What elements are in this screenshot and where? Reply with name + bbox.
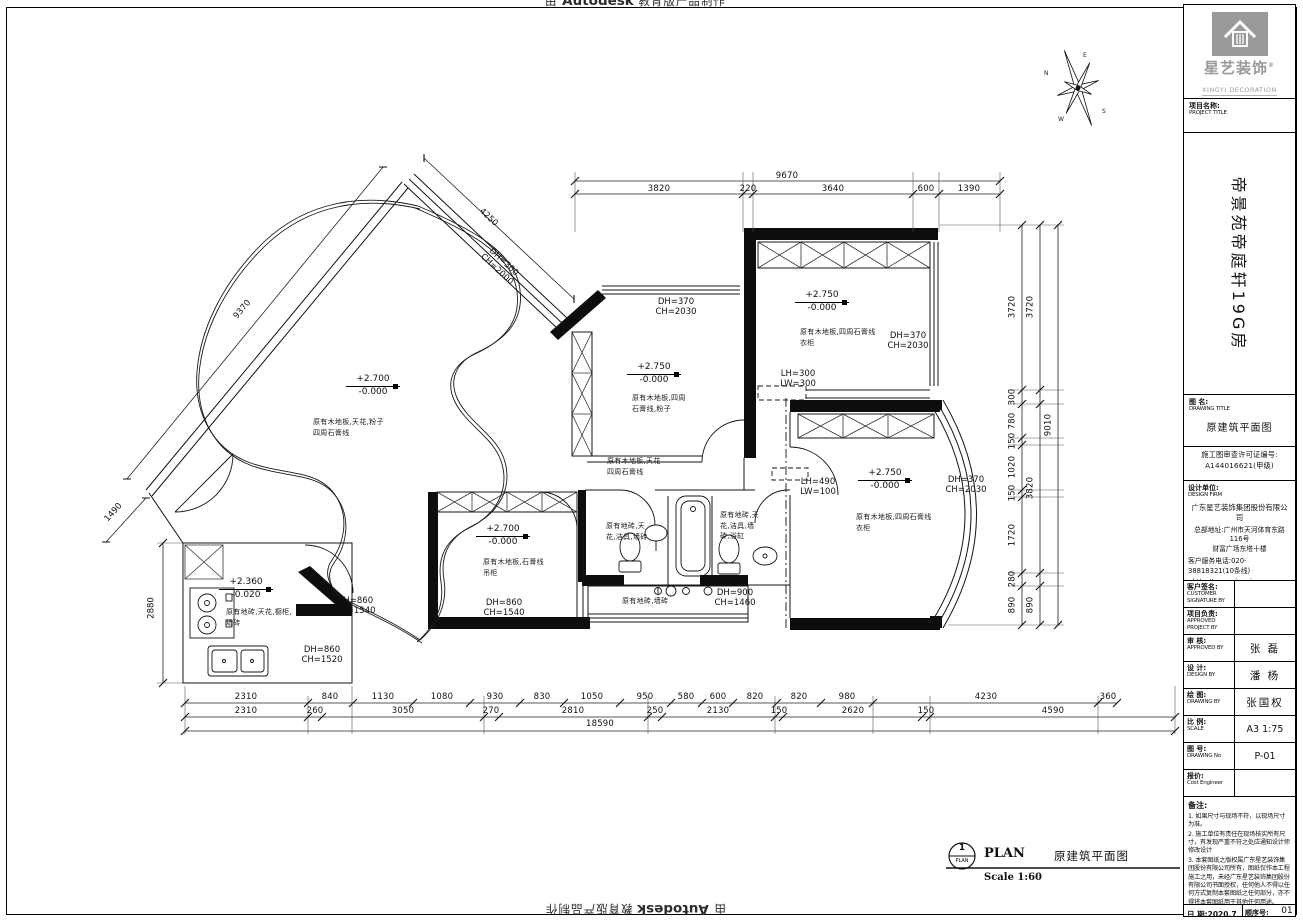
level-up: +2.700 [356,374,389,384]
tag-line: CH=2030 [655,307,696,317]
row-label-en: SCALE [1187,726,1231,733]
level-down: -0.000 [476,537,530,548]
opening-tag: DH=370 CH=2030 [655,297,696,317]
level-marker-bed-mid: +2.750 -0.000 [627,362,681,387]
firm-address2: 财富广场东塔十楼 [1188,545,1291,555]
project-label-en: PROJECT TITLE [1189,110,1290,117]
level-down: -0.020 [219,590,273,601]
tag-line: DH=860 [483,598,524,608]
finish-note-bed-tr: 原有木地板,四周石膏线 衣柜 [800,327,876,348]
license-line1: 施工图审查许可证编号: [1184,450,1295,461]
dim: 150 [1008,433,1017,450]
project-label: 项目名称: [1189,102,1290,110]
compass-n: N [1044,70,1049,77]
dim: 150 [771,707,788,716]
level-down: -0.000 [627,375,681,386]
plan-scale: Scale 1:60 [984,872,1042,883]
date-label: 日 期:2020.7 [1187,909,1239,916]
tag-line: CH=1520 [301,655,342,665]
opening-tag: DH=860 CH=1540 [334,596,375,616]
tag-line: DH=860 [301,645,342,655]
level-up: +2.700 [486,524,519,534]
plan-number: 1 [959,843,965,853]
floor-plan-canvas [0,0,1183,921]
dim: 820 [791,693,808,702]
dim: 780 [1008,413,1017,430]
row-value: 潘 杨 [1234,662,1295,688]
dim: 600 [710,693,727,702]
dim: 2130 [707,707,729,716]
drawing-title: 原建筑平面图 [1189,419,1290,434]
row-label: 项目负责: [1187,610,1231,618]
level-up: +2.750 [805,290,838,300]
sink-icon [208,646,268,676]
seq-value: 01 [1279,905,1295,916]
dim: 2620 [842,707,864,716]
row-label: 审 核: [1187,637,1231,645]
dim: 3640 [822,185,844,194]
finish-note-master: 原有木地板,四周石膏线 衣柜 [856,512,932,533]
compass-e: E [1083,52,1087,59]
project-title-cell: 项目名称: PROJECT TITLE [1184,99,1295,133]
dim: 2310 [235,693,257,702]
dim-bottom-total: 18590 [586,720,614,729]
compass-w: W [1058,116,1064,123]
dim: 270 [483,707,500,716]
dim: 890 [1008,597,1017,614]
row-label: 设 计: [1187,664,1231,672]
compass-s: S [1102,108,1106,115]
dim-left-vert: 2880 [147,597,156,619]
row-label-en: APPROVED PROJECT BY [1187,618,1231,631]
row-value: 张 磊 [1234,635,1295,661]
opening-tag: DH=860 CH=1520 [301,645,342,665]
dim: 220 [740,185,757,194]
row-label-en: Cost Engineer [1187,780,1231,787]
level-marker-living: +2.700 -0.000 [346,374,400,399]
tag-line: CH=1540 [334,606,375,616]
row-label: 比 例: [1187,718,1231,726]
row-value: A3 1:75 [1234,716,1295,742]
row-scale: 比 例: SCALE A3 1:75 [1184,716,1295,743]
row-value [1234,770,1295,796]
finish-note-bath2: 原有地砖,天 花,洁具,墙 砖,浴缸 [720,510,759,542]
design-firm-cell: 设计单位: DESIGN FIRM 广东星艺装饰集团股份有限公司 总部地址:广州… [1184,481,1295,581]
notes-cell: 备注: 1. 如果尺寸与现场不符，以现场尺寸为准。 2. 施工单位有责任在现场核… [1184,797,1295,905]
watermark-brand: Autodesk [637,901,709,917]
dim: 1130 [372,693,394,702]
dim: 150 [918,707,935,716]
drawing-sheet: 由 Autodesk 教育版产品制作 由 Autodesk 教育版产品制作 E … [0,0,1303,921]
note-3: 3. 本套图纸之版权属广东星艺装饰集团股份有限公司所有，图纸仅作本工程施工之用，… [1188,857,1291,905]
row-value: 张国权 [1234,689,1295,715]
dim: 280 [1008,571,1017,588]
tag-line: LW=300 [780,379,816,389]
plan-title-cn: 原建筑平面图 [1054,848,1129,864]
dim: 1720 [1008,524,1017,546]
title-block: 星艺装饰® XINGYI DECORATION 项目名称: PROJECT TI… [1183,4,1296,917]
opening-tag: DH=370 CH=2030 [887,331,928,351]
watermark-brand: Autodesk [562,0,634,9]
dim: 3050 [392,707,414,716]
row-label: 客户签名: [1187,583,1231,591]
dim: 600 [918,185,935,194]
opening-tag: DH=900 CH=1460 [714,588,755,608]
row-label: 绘 图: [1187,691,1231,699]
date-cell: 日 期:2020.7 DATE 顺序号: NO. 01 [1184,905,1295,916]
note-1: 1. 如果尺寸与现场不符，以现场尺寸为准。 [1188,813,1291,830]
row-approved-project: 项目负责: APPROVED PROJECT BY [1184,608,1295,635]
dim: 1390 [958,185,980,194]
firm-address1: 总部地址:广州市天河体育东路116号 [1188,526,1291,545]
plan-title-en: PLAN [984,846,1025,861]
dim: 930 [487,693,504,702]
firm-label-en: DESIGN FIRM [1188,492,1291,499]
dim-top-total: 9670 [776,172,798,181]
dim: 1080 [431,693,453,702]
tag-line: CH=2030 [945,485,986,495]
seq-label: 顺序号: [1245,909,1277,916]
row-label-en: DRAWING BY [1187,699,1231,706]
notes-label: 备注: [1188,800,1291,811]
plan-ref: PLAN [955,858,968,864]
finish-note-bed-small: 原有木地板,石膏线 吊柜 [483,557,544,578]
dim: 2810 [562,707,584,716]
tag-line: DH=370 [655,297,696,307]
project-name-cell: 帝景苑帝庭轩19G房 [1184,133,1295,395]
row-label-en: CUSTOMER SIGNATURE BY [1187,591,1231,604]
logo-house-icon [1212,12,1268,56]
drawing-title-cell: 图 名: DRAWING TITLE 原建筑平面图 [1184,395,1295,447]
row-customer-signature: 客户签名: CUSTOMER SIGNATURE BY [1184,581,1295,608]
tag-line: CH=2030 [887,341,928,351]
finish-note-corridor: 原有木地板,天花 四周石膏线 [607,456,661,477]
tag-line: LH=300 [780,369,816,379]
dim: 1050 [581,693,603,702]
project-name: 帝景苑帝庭轩19G房 [1228,176,1252,351]
dim: 890 [1026,597,1035,614]
level-down: -0.000 [795,303,849,314]
dim: 580 [678,693,695,702]
note-2: 2. 施工单位有责任在现场核实所有尺寸，有发现严重不符之处应通知设计师修改设计 [1188,831,1291,856]
opening-tag: DH=860 CH=1540 [483,598,524,618]
row-value: P-01 [1234,743,1295,769]
row-label: 报价: [1187,772,1231,780]
dashed-openings [758,386,808,630]
level-up: +2.750 [868,468,901,478]
level-marker-kitchen: +2.360 -0.020 [219,577,273,602]
row-label-en: APPROVED BY [1187,645,1231,652]
opening-tag: LH=300 LW=300 [780,369,816,389]
tag-line: DH=860 [334,596,375,606]
dim: 4590 [1042,707,1064,716]
watermark-text: 教育版产品制作 [545,902,633,916]
tag-line: DH=370 [887,331,928,341]
registered-mark: ® [1268,62,1275,69]
dim: 260 [307,707,324,716]
row-drawing-by: 绘 图: DRAWING BY 张国权 [1184,689,1295,716]
tag-line: DH=370 [945,475,986,485]
finish-note-balcony: 原有地砖,墙砖 [622,596,668,607]
row-approved-by: 审 核: APPROVED BY 张 磊 [1184,635,1295,662]
finish-note-kitchen: 原有地砖,天花,橱柜, 墙砖 [226,607,292,628]
dim-right-total: 9010 [1044,414,1053,436]
firm-phone: 客户服务电话:020-38818321(10条线) [1188,557,1291,576]
tag-line: CH=1540 [483,608,524,618]
dim: 830 [534,693,551,702]
row-value [1234,608,1295,634]
row-design-by: 设 计: DESIGN BY 潘 杨 [1184,662,1295,689]
dim: 300 [1008,389,1017,406]
dim: 3720 [1026,296,1035,318]
dim: 2310 [235,707,257,716]
company-logo: 星艺装饰® XINGYI DECORATION [1184,5,1295,99]
tag-line: LW=100 [800,487,836,497]
dim: 820 [747,693,764,702]
watermark-text: 由 [713,902,726,916]
basin-icon [753,547,777,565]
brand-en: XINGYI DECORATION [1202,87,1277,96]
level-up: +2.750 [637,362,670,372]
license-line2: A144016621(甲级) [1184,461,1295,472]
opening-tag: DH=370 CH=2030 [945,475,986,495]
dim: 3820 [1026,477,1035,499]
dim: 3820 [648,185,670,194]
license-cell: 施工图审查许可证编号: A144016621(甲级) [1184,447,1295,481]
opening-tag: LH=490 LW=100 [800,477,836,497]
dim: 980 [839,693,856,702]
finish-note-living: 原有木地板,天花,粉子 四周石膏线 [313,417,384,438]
row-label-en: DRAWING No [1187,753,1231,760]
brand-cn: 星艺装饰 [1204,59,1268,77]
level-marker-master: +2.750 -0.000 [858,468,912,493]
autodesk-watermark-top: 由 Autodesk 教育版产品制作 [545,0,726,9]
basin-icon [645,525,667,541]
level-up: +2.360 [229,577,262,587]
compass-icon [1036,40,1121,136]
row-cost-engineer: 报价: Cost Engineer [1184,770,1295,797]
dim: 250 [647,707,664,716]
dim: 150 [1008,485,1017,502]
finish-note-bath1: 原有地砖,天 花,洁具,墙砖 [606,521,648,542]
finish-note-bed-mid: 原有木地板,四周 石膏线,粉子 [632,393,686,414]
tag-line: DH=900 [714,588,755,598]
level-marker-bed-tr: +2.750 -0.000 [795,290,849,315]
watermark-text: 教育版产品制作 [638,0,726,8]
tag-line: LH=490 [800,477,836,487]
dim: 950 [637,693,654,702]
dim: 840 [322,693,339,702]
drawing-label: 图 名: [1189,398,1290,406]
dim: 4230 [975,693,997,702]
firm-name: 广东星艺装饰集团股份有限公司 [1188,503,1291,524]
tag-line: CH=1460 [714,598,755,608]
watermark-text: 由 [545,0,558,8]
dim: 3720 [1008,296,1017,318]
dim: 1020 [1008,456,1017,478]
row-label-en: DESIGN BY [1187,672,1231,679]
level-down: -0.000 [858,481,912,492]
row-label: 图 号: [1187,745,1231,753]
drawing-label-en: DRAWING TITLE [1189,406,1290,413]
row-value [1234,581,1295,607]
row-drawing-no: 图 号: DRAWING No P-01 [1184,743,1295,770]
firm-label: 设计单位: [1188,484,1291,492]
autodesk-watermark-bottom: 由 Autodesk 教育版产品制作 [545,901,726,917]
level-marker-bed-small: +2.700 -0.000 [476,524,530,549]
brand-name: 星艺装饰® [1184,60,1295,77]
level-down: -0.000 [346,387,400,398]
dim: 360 [1100,693,1117,702]
